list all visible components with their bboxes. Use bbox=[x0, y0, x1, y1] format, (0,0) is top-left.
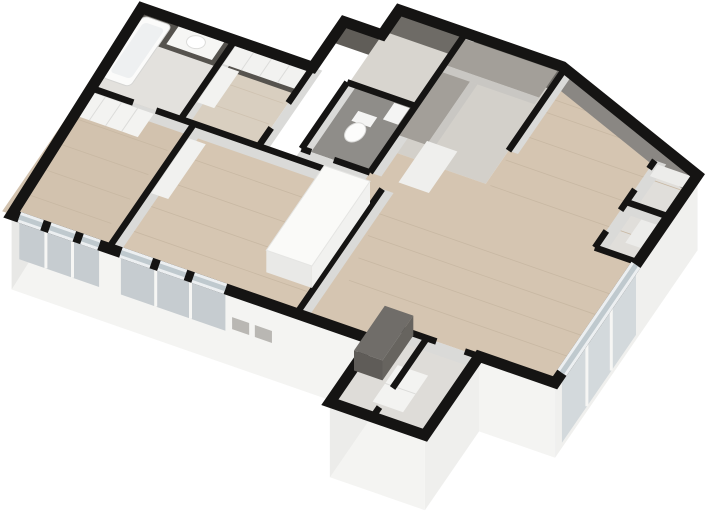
floor-plan-render bbox=[0, 0, 707, 512]
floorplan-viewport bbox=[0, 0, 707, 512]
plan-projection bbox=[0, 0, 707, 462]
